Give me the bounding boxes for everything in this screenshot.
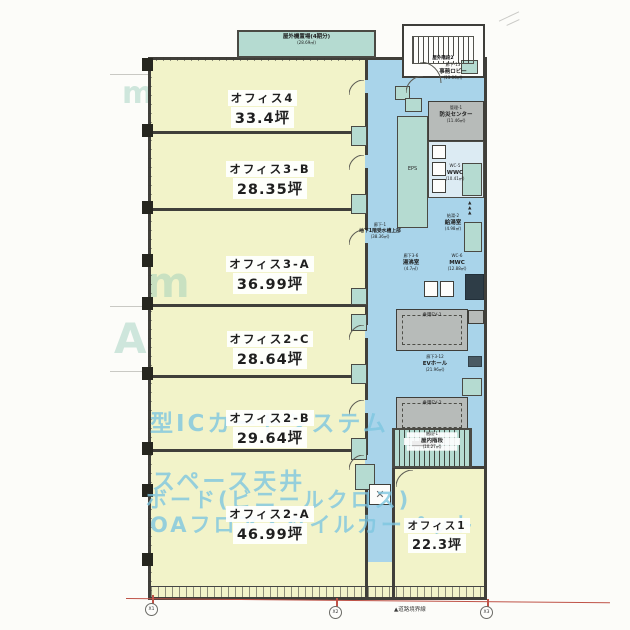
shaft-ps — [351, 126, 367, 146]
column-nub — [142, 442, 153, 455]
office-2b-label: オフィス2-B 29.64坪 — [195, 407, 345, 448]
toilet-stall — [424, 281, 438, 297]
shaft-ps — [351, 364, 367, 384]
grid-marker: X2 — [329, 606, 342, 619]
door-gap — [365, 155, 368, 168]
office-1-label: オフィス1 22.3坪 — [392, 514, 482, 553]
door-gap — [365, 80, 368, 93]
shaft-ps — [351, 194, 367, 214]
toilet-stall — [432, 145, 446, 159]
wwc-label: WC-5 WWC (10.41㎡) — [438, 164, 472, 183]
ev-hall-label: 廊下3-12 EVホール (21.96㎡) — [412, 355, 458, 374]
shaft-eps-small — [405, 98, 422, 112]
wall-2b-2a — [151, 449, 367, 452]
watermark-letter: A — [114, 314, 147, 363]
corridor-label: 廊下-1 地下1階受水槽上部 (38.36㎡) — [350, 223, 410, 241]
bottom-wall-ticks — [151, 586, 484, 598]
wall-2c-2b — [151, 375, 367, 378]
elevator-car-outline — [402, 315, 462, 345]
indoor-stair-label: 階段-1 屋内階段 (10.27㎡) — [404, 432, 460, 451]
office-3b-label: オフィス3-B 28.35坪 — [195, 158, 345, 199]
shaft-ps — [351, 288, 367, 305]
grid-marker: X1 — [145, 603, 158, 616]
ev2-label: 乗用EV-2 — [396, 400, 468, 406]
guide-line — [110, 74, 152, 75]
security-label: 管理-1 防災センター (11.46㎡) — [430, 106, 482, 125]
ev1-label: 乗用EV-1 — [396, 312, 468, 318]
outdoor-stair-label: 屋外階段2 — [408, 44, 478, 63]
column-nub — [142, 254, 153, 267]
door-arc-icon — [349, 155, 365, 171]
roof-unit-label: 屋外機置場(4期分) (28.69㎡) — [245, 34, 368, 47]
floor-plan-page: m m A 屋外機置場(4期 — [0, 0, 630, 630]
door-arc-icon — [406, 76, 424, 94]
column-nub — [142, 367, 153, 380]
mwc-label: WC-6 MWC (12.88㎡) — [441, 254, 473, 273]
column-nub — [142, 553, 153, 566]
shaft-ps-dark — [468, 356, 482, 367]
elevator-car-outline — [402, 403, 462, 428]
wall-3a-2c — [151, 304, 367, 307]
office-2a-label: オフィス2-A 46.99坪 — [195, 503, 345, 544]
door-arc-icon — [349, 80, 365, 96]
office-3a-label: オフィス3-A 36.99坪 — [195, 253, 345, 294]
wall-3b-3a — [151, 208, 367, 211]
column-nub — [142, 201, 153, 214]
office-4-label: オフィス4 33.4坪 — [195, 87, 330, 128]
yuwakashi-label: 廊下3-6 湯沸室 (4.7㎡) — [396, 254, 426, 273]
column-nub — [142, 124, 153, 137]
shaft-small — [468, 310, 484, 324]
eps-label: EPS — [397, 166, 428, 172]
door-arc-icon — [349, 455, 365, 471]
toilet-stall — [440, 281, 454, 297]
column-nub — [142, 58, 153, 71]
grid-marker: X3 — [480, 606, 493, 619]
shaft-dark — [465, 274, 484, 300]
lobby-label: 廊下-13 事務ロビー (13.06㎡) — [424, 63, 482, 82]
office-2c-label: オフィス2-C 28.64坪 — [195, 328, 345, 369]
shaft-ds — [462, 378, 482, 396]
scan-scratch — [506, 19, 519, 26]
column-nub — [142, 297, 153, 310]
room-eps — [397, 116, 428, 228]
door-arc-icon — [349, 325, 365, 341]
vent-marks: ▲▲▲ — [468, 202, 474, 217]
kyuto-label: 給湯-2 給湯室 (4.98㎡) — [434, 214, 472, 233]
wall-office4-3b — [151, 131, 367, 134]
road-boundary-label: ▲道路境界線 — [394, 605, 426, 613]
